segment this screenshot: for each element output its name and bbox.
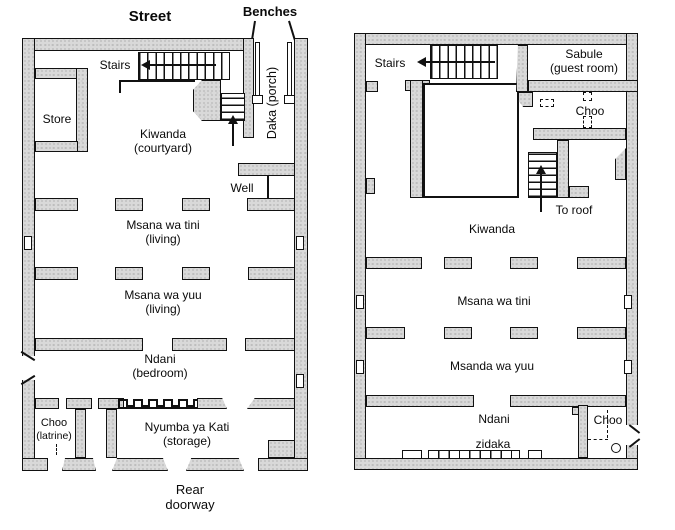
zidaka-niche bbox=[528, 450, 542, 459]
fixture-dash-line bbox=[607, 410, 608, 438]
partition-wall bbox=[510, 395, 626, 407]
msanda-wa-yuu-label: Msanda wa yuu bbox=[450, 359, 534, 373]
sabule-wall bbox=[516, 45, 528, 92]
wall-pilaster bbox=[615, 148, 626, 180]
stairs-label: Stairs bbox=[375, 56, 406, 70]
partition-wall bbox=[366, 257, 422, 269]
choo-wall bbox=[533, 128, 626, 140]
floor-plan-figure: Street Benches Daka (porch) Stairs bbox=[0, 0, 675, 530]
fixture-dashed bbox=[583, 92, 592, 101]
pillar bbox=[510, 257, 538, 269]
msana-wa-tini-label: Msana wa tini bbox=[457, 294, 530, 308]
pillar bbox=[444, 257, 472, 269]
outer-wall-top bbox=[354, 33, 638, 45]
outer-wall-left bbox=[354, 33, 366, 470]
sabule-wall bbox=[528, 80, 638, 92]
choo-lower-label: Choo bbox=[594, 413, 623, 427]
outer-wall-bottom bbox=[354, 458, 638, 470]
partition-wall bbox=[577, 257, 626, 269]
choo-wall bbox=[518, 92, 533, 107]
toilet-circle bbox=[611, 443, 621, 453]
zidaka-niche-row bbox=[428, 450, 520, 459]
to-roof-label: To roof bbox=[556, 203, 593, 217]
fixture-dashed bbox=[540, 99, 554, 107]
zidaka-niche bbox=[402, 450, 422, 459]
stair-arrow-line bbox=[426, 61, 495, 63]
sabule-label: Sabule (guest room) bbox=[550, 47, 618, 75]
choo-wall bbox=[569, 186, 589, 198]
door-notch bbox=[624, 295, 632, 309]
stair-arrow-line bbox=[540, 172, 542, 212]
door-notch bbox=[356, 360, 364, 374]
kiwanda-label: Kiwanda bbox=[469, 222, 515, 236]
choo-wall bbox=[557, 140, 569, 198]
stair-wall bbox=[366, 81, 378, 92]
stair-wall bbox=[410, 80, 423, 198]
choo-wall bbox=[578, 405, 588, 458]
pillar bbox=[510, 327, 538, 339]
partition-wall bbox=[577, 327, 626, 339]
fixture-dash-line bbox=[588, 439, 608, 440]
choo-upper-label: Choo bbox=[576, 104, 605, 118]
door-notch bbox=[356, 295, 364, 309]
left-arrow-icon bbox=[417, 57, 426, 67]
right-plan: Stairs Sabule (guest room) Choo To roof … bbox=[0, 0, 675, 530]
pillar bbox=[444, 327, 472, 339]
up-arrow-icon bbox=[536, 165, 546, 174]
partition-wall bbox=[366, 395, 474, 407]
outer-wall-right bbox=[626, 33, 638, 470]
partition-wall bbox=[366, 327, 405, 339]
ndani-label: Ndani bbox=[478, 412, 509, 426]
door-notch bbox=[624, 360, 632, 374]
wall-pilaster bbox=[366, 178, 375, 194]
courtyard-void bbox=[423, 83, 519, 198]
stair-treads bbox=[528, 152, 557, 198]
